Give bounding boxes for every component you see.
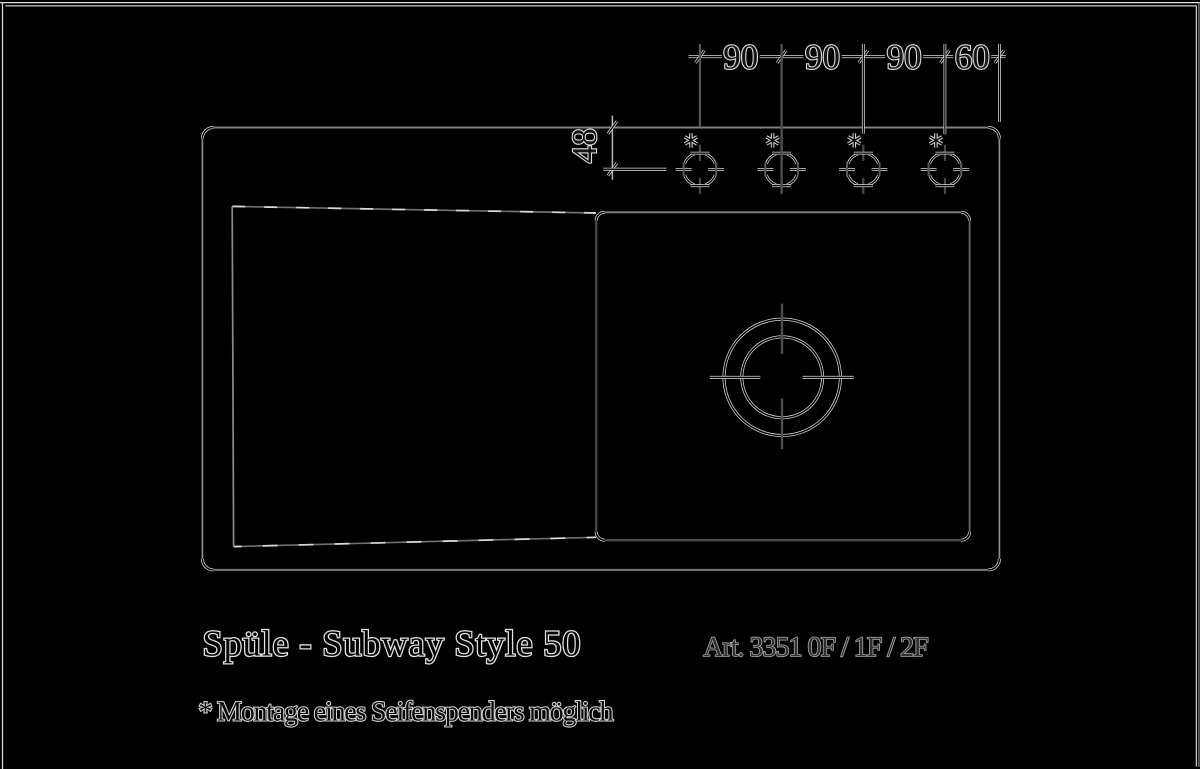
svg-text:90: 90: [887, 37, 922, 76]
svg-text:* Montage eines Seifenspenders: * Montage eines Seifenspenders möglich: [199, 696, 614, 727]
svg-text:60: 60: [955, 37, 990, 76]
svg-text:48: 48: [565, 128, 604, 163]
svg-text:Art. 3351 0F / 1F / 2F: Art. 3351 0F / 1F / 2F: [703, 632, 929, 663]
svg-text:90: 90: [805, 37, 840, 76]
svg-text:Spüle - Subway Style 50: Spüle - Subway Style 50: [203, 622, 581, 663]
svg-text:90: 90: [723, 37, 758, 76]
